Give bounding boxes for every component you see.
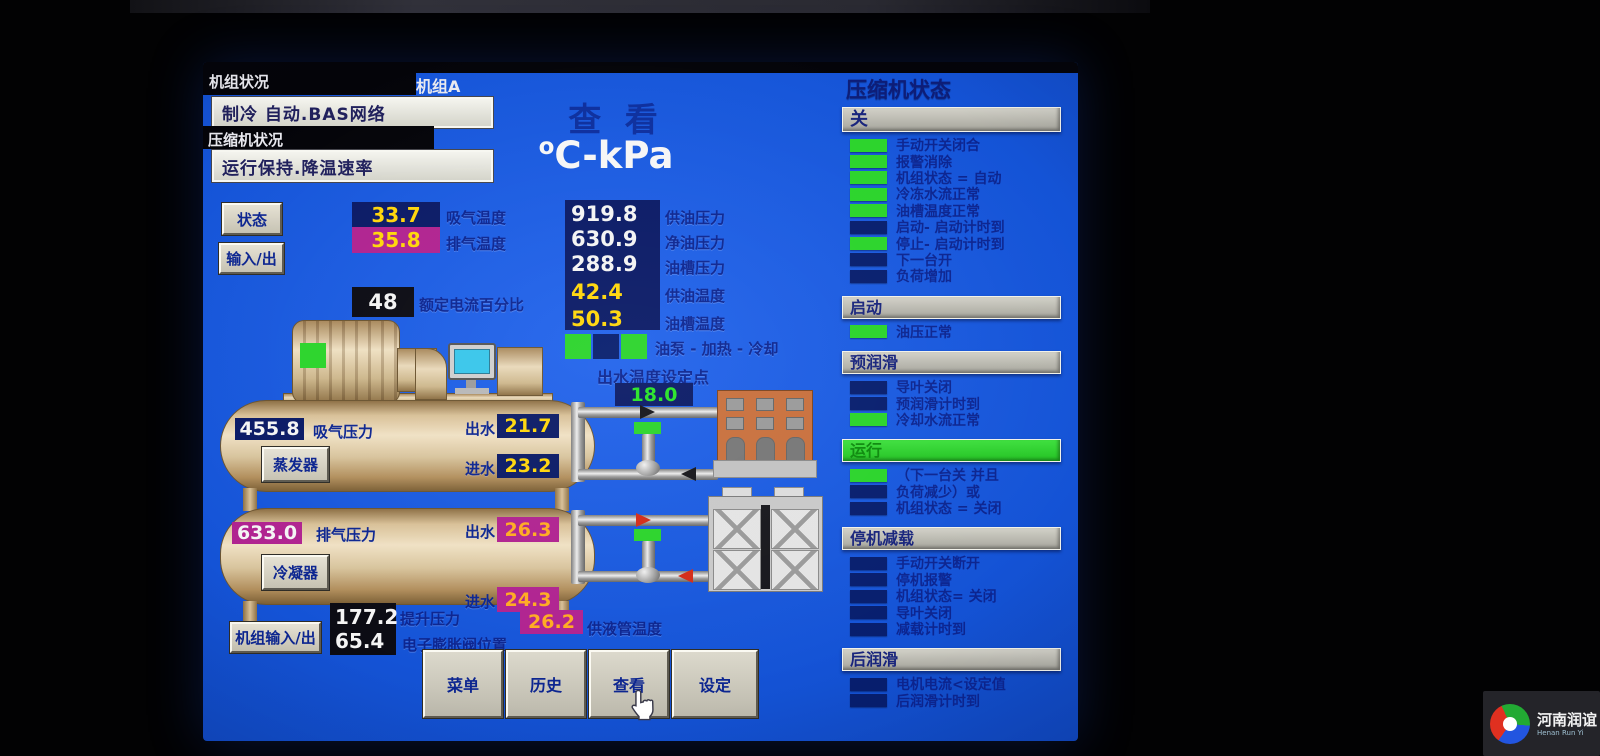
liquid-line-temp-label: 供液管温度	[587, 618, 662, 639]
compressor-status-sections: 关手动开关闭合报警消除机组状态 = 自动冷冻水流正常油槽温度正常启动- 启动计时…	[842, 107, 1061, 709]
cond-entering-label: 进水	[465, 591, 495, 612]
building-window	[726, 398, 744, 411]
photo-canvas: 机组状况 机组A 制冷 自动.BAS网络 压缩机状况 运行保持.降温速率 查 看…	[0, 0, 1600, 756]
watermark: 河南润谊 Henan Run Yi	[1483, 691, 1600, 756]
degree-symbol: o	[539, 134, 555, 160]
unit-status-field[interactable]: 制冷 自动.BAS网络	[212, 97, 493, 128]
status-section-header: 预润滑	[842, 351, 1061, 374]
view-button[interactable]: 查看	[589, 650, 669, 718]
watermark-cn: 河南润谊	[1537, 711, 1597, 729]
status-item: 减载计时到	[842, 621, 1061, 637]
sump-temp-value: 50.3	[571, 307, 623, 331]
building-window	[786, 398, 804, 411]
status-item: 后润滑计时到	[842, 693, 1061, 709]
control-cabinet-graphic	[497, 347, 543, 396]
suction-pressure-label: 吸气压力	[313, 421, 373, 442]
status-led-indicator	[850, 325, 887, 338]
compressor-status-panel: 压缩机状态 关手动开关闭合报警消除机组状态 = 自动冷冻水流正常油槽温度正常启动…	[842, 74, 1061, 709]
status-led-indicator	[850, 694, 887, 707]
flow-arrow-right-icon	[636, 513, 651, 527]
monitor-screen-graphic	[454, 349, 490, 374]
oil-supply-temp-value: 42.4	[571, 280, 623, 304]
suction-temp-value: 33.7	[352, 202, 440, 227]
menu-button[interactable]: 菜单	[423, 650, 503, 718]
unit-io-button[interactable]: 机组输入/出	[230, 622, 321, 653]
oil-pump-led	[565, 334, 591, 359]
compressor-status-label: 压缩机状况	[208, 129, 283, 150]
flow-arrow-left-icon	[681, 467, 696, 481]
tank-leg	[243, 488, 257, 511]
status-led-indicator	[850, 204, 887, 217]
condenser-button[interactable]: 冷凝器	[262, 555, 329, 590]
discharge-temp-label: 排气温度	[446, 233, 506, 254]
flow-arrow-left-icon	[678, 569, 693, 583]
status-item: 油压正常	[842, 324, 1061, 340]
status-led-indicator	[850, 502, 887, 515]
leaving-water-setpoint-value: 18.0	[615, 383, 693, 406]
status-item-label: 负荷增加	[896, 266, 952, 286]
status-button[interactable]: 状态	[222, 203, 282, 235]
status-led-indicator	[850, 270, 887, 283]
status-item: 机组状态 = 关闭	[842, 500, 1061, 516]
status-led-indicator	[850, 221, 887, 234]
watermark-text: 河南润谊 Henan Run Yi	[1537, 711, 1597, 737]
flow-arrow-right-icon	[640, 405, 655, 419]
evap-leaving-value: 21.7	[497, 414, 559, 438]
status-led-indicator	[850, 397, 887, 410]
status-led-indicator	[850, 237, 887, 250]
status-led-indicator	[850, 253, 887, 266]
liquid-line-temp-value: 26.2	[520, 610, 583, 634]
tank-leg	[555, 488, 569, 511]
discharge-pipe-graphic	[415, 348, 447, 400]
building-window	[786, 417, 804, 430]
chw-valve-led	[634, 422, 661, 434]
status-item-label: 减载计时到	[896, 619, 966, 639]
cw-valve-icon	[636, 567, 660, 583]
fla-percent-label: 额定电流百分比	[419, 294, 524, 315]
status-section-header: 运行	[842, 439, 1061, 462]
status-led-indicator	[850, 469, 887, 482]
tower-panel	[771, 550, 819, 590]
lift-pressure-label: 提升压力	[400, 608, 460, 629]
cw-valve-led	[634, 529, 661, 541]
tower-panel	[713, 509, 761, 549]
status-section-header: 后润滑	[842, 648, 1061, 671]
motor-run-led	[300, 343, 326, 368]
eev-position-value: 65.4	[335, 629, 384, 653]
suction-temp-label: 吸气温度	[446, 207, 506, 228]
status-item-label: 后润滑计时到	[896, 691, 980, 711]
sump-temp-label: 油槽温度	[665, 313, 725, 334]
monitor-bezel	[130, 0, 1150, 13]
lift-eev-box: 177.2 65.4	[330, 603, 396, 655]
lift-pressure-value: 177.2	[335, 605, 398, 629]
setpoint-button[interactable]: 设定	[672, 650, 758, 718]
io-button[interactable]: 输入/出	[219, 243, 284, 274]
tower-panel	[713, 550, 761, 590]
status-led-indicator	[850, 155, 887, 168]
control-monitor-graphic	[448, 343, 496, 380]
fla-percent-value: 48	[352, 287, 414, 317]
suction-pressure-value: 455.8	[235, 418, 304, 440]
oil-pump-label: 油泵 - 加热 - 冷却	[655, 338, 778, 359]
status-item: 负荷增加	[842, 268, 1061, 284]
unit-status-label: 机组状况	[209, 71, 269, 92]
status-section-header: 启动	[842, 296, 1061, 319]
status-item-label: 机组状态 = 关闭	[896, 498, 1001, 518]
evap-entering-value: 23.2	[497, 454, 559, 478]
discharge-temp-value: 35.8	[352, 227, 440, 253]
tower-center-stripe	[761, 505, 770, 589]
status-led-indicator	[850, 606, 887, 619]
tank-leg	[243, 601, 257, 624]
building-graphic	[717, 390, 813, 470]
chw-valve-icon	[636, 460, 660, 476]
building-window	[756, 417, 774, 430]
status-led-indicator	[850, 485, 887, 498]
sump-pressure-value: 288.9	[571, 252, 637, 276]
cond-entering-value: 24.3	[497, 587, 559, 612]
hmi-screen: 机组状况 机组A 制冷 自动.BAS网络 压缩机状况 运行保持.降温速率 查 看…	[203, 62, 1078, 741]
net-oil-pressure-label: 净油压力	[665, 232, 725, 253]
oil-supply-pressure-label: 供油压力	[665, 207, 725, 228]
status-led-indicator	[850, 381, 887, 394]
status-item-label: 油压正常	[896, 322, 952, 342]
oil-values-box: 919.8 630.9 288.9 42.4 50.3	[565, 200, 660, 330]
status-led-indicator	[850, 139, 887, 152]
status-section-header: 关	[842, 107, 1061, 132]
monitor-base-graphic	[455, 388, 489, 394]
status-led-indicator	[850, 623, 887, 636]
status-section-header: 停机减载	[842, 527, 1061, 550]
status-item: 冷却水流正常	[842, 412, 1061, 428]
oil-pump-led	[593, 334, 619, 359]
evap-entering-label: 进水	[465, 458, 495, 479]
unit-name-label: 机组A	[416, 73, 460, 97]
henan-runyi-logo-icon	[1490, 704, 1530, 744]
status-led-indicator	[850, 171, 887, 184]
net-oil-pressure-value: 630.9	[571, 227, 637, 251]
watermark-en: Henan Run Yi	[1537, 729, 1597, 737]
logo-center	[1503, 717, 1517, 731]
discharge-pressure-label: 排气压力	[316, 524, 376, 545]
compressor-status-field[interactable]: 运行保持.降温速率	[212, 150, 493, 182]
discharge-pressure-value: 633.0	[232, 522, 302, 544]
oil-supply-pressure-value: 919.8	[571, 202, 637, 226]
status-led-indicator	[850, 573, 887, 586]
cooling-tower-graphic	[708, 496, 823, 592]
compressor-status-title: 压缩机状态	[846, 74, 1061, 104]
cond-leaving-label: 出水	[465, 521, 495, 542]
evap-leaving-label: 出水	[465, 418, 495, 439]
status-led-indicator	[850, 557, 887, 570]
history-button[interactable]: 历史	[506, 650, 586, 718]
cond-leaving-value: 26.3	[497, 517, 559, 542]
status-led-indicator	[850, 188, 887, 201]
tower-panel	[771, 509, 819, 549]
evaporator-button[interactable]: 蒸发器	[262, 447, 329, 482]
status-item-label: 冷却水流正常	[896, 410, 980, 430]
oil-pump-led	[621, 334, 647, 359]
building-window	[756, 398, 774, 411]
sump-pressure-label: 油槽压力	[665, 257, 725, 278]
units-title: oC-kPa	[521, 134, 691, 177]
oil-supply-temp-label: 供油温度	[665, 285, 725, 306]
status-led-indicator	[850, 413, 887, 426]
status-led-indicator	[850, 590, 887, 603]
building-base-graphic	[713, 460, 817, 478]
status-led-indicator	[850, 678, 887, 691]
building-window	[726, 417, 744, 430]
